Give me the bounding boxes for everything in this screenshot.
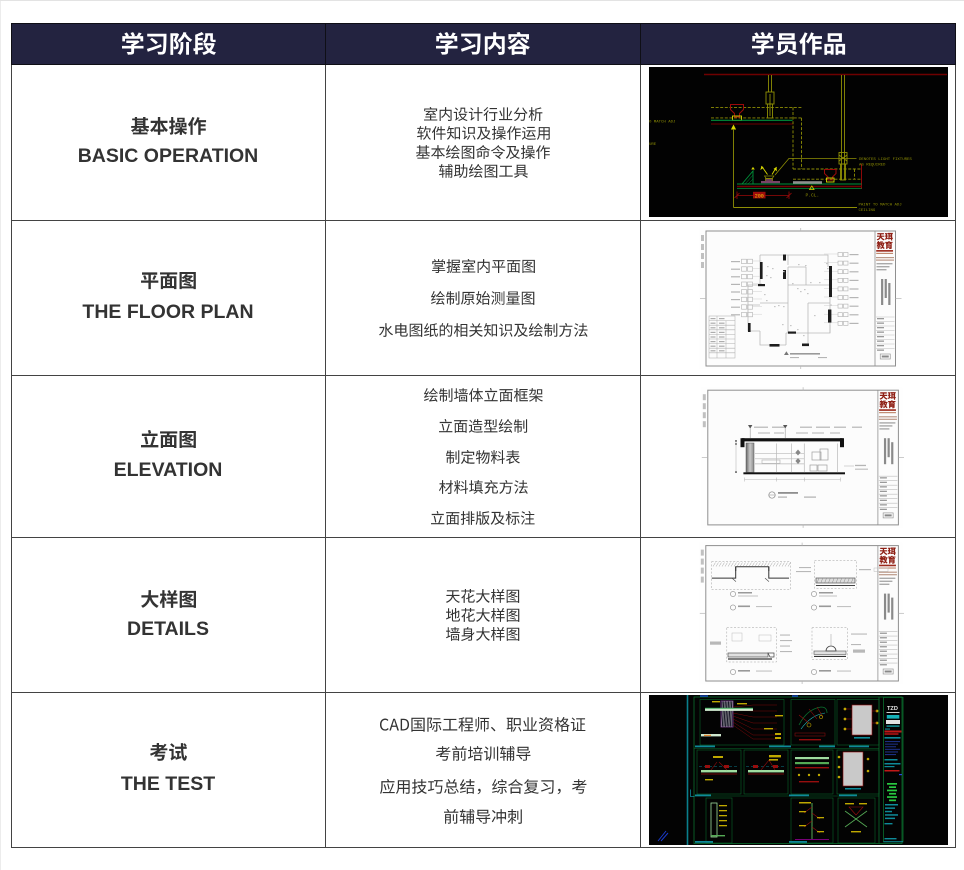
svg-text:CEILING: CEILING (859, 209, 876, 213)
svg-text:DENOTES LIGHT FIXTURES: DENOTES LIGHT FIXTURES (859, 158, 912, 162)
svg-text:URE: URE (649, 143, 657, 147)
svg-text:P.CL.: P.CL. (806, 193, 820, 199)
svg-text:AS REQUIRED: AS REQUIRED (859, 164, 886, 168)
svg-text:200: 200 (755, 193, 764, 199)
svg-text:PAINT TO MATCH ADJ: PAINT TO MATCH ADJ (859, 204, 902, 208)
svg-text:TZD: TZD (887, 706, 898, 712)
svg-text:O MATCH ADJ: O MATCH ADJ (649, 121, 675, 125)
